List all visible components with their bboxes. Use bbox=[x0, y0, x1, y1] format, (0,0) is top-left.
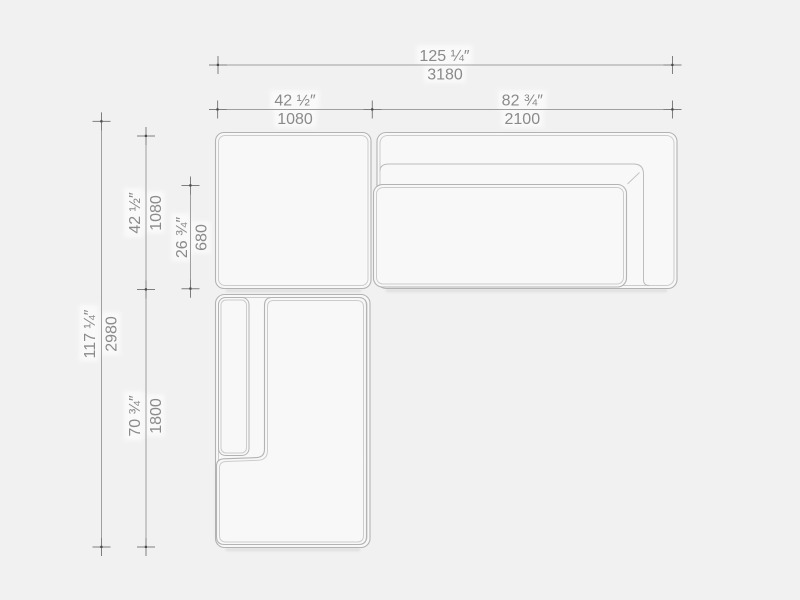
svg-text:1080: 1080 bbox=[148, 195, 165, 231]
svg-text:1080: 1080 bbox=[277, 111, 313, 128]
svg-text:125 ¼″: 125 ¼″ bbox=[419, 48, 469, 65]
svg-text:42 ½″: 42 ½″ bbox=[127, 192, 144, 234]
svg-text:117 ¼″: 117 ¼″ bbox=[82, 309, 99, 358]
svg-text:2980: 2980 bbox=[104, 316, 121, 352]
svg-text:26 ¾″: 26 ¾″ bbox=[174, 217, 191, 259]
svg-text:680: 680 bbox=[194, 224, 211, 251]
svg-text:1800: 1800 bbox=[148, 398, 165, 434]
svg-text:2100: 2100 bbox=[505, 111, 541, 128]
svg-text:3180: 3180 bbox=[427, 67, 463, 84]
svg-text:70 ¾″: 70 ¾″ bbox=[127, 395, 144, 437]
svg-text:42 ½″: 42 ½″ bbox=[274, 93, 316, 110]
svg-text:82 ¾″: 82 ¾″ bbox=[502, 93, 544, 110]
